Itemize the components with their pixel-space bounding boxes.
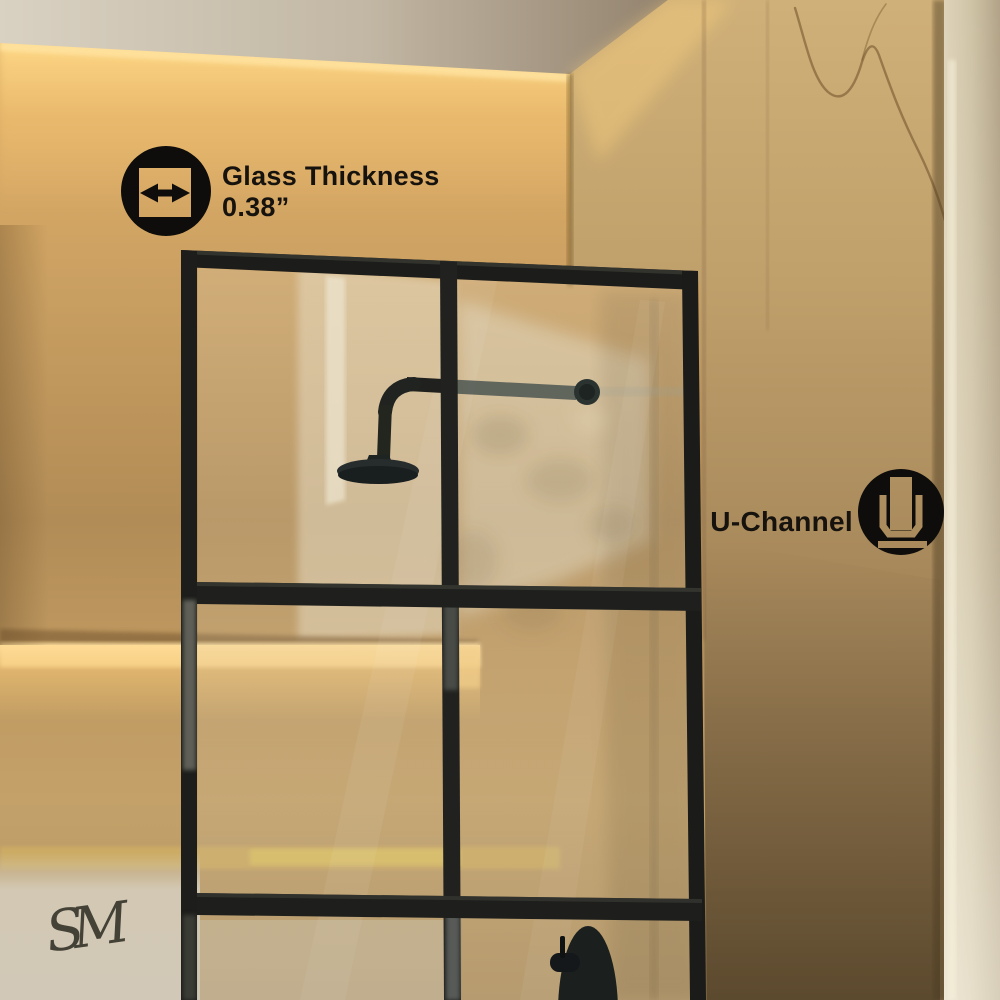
right-wall-seam-2	[766, 0, 769, 330]
glass-thickness-annotation: Glass Thickness 0.38”	[222, 161, 440, 223]
mixer-valve-pin	[560, 936, 565, 958]
frame-center-mullion-sheen-low	[446, 912, 460, 1000]
glass-thickness-annotation-icon	[121, 146, 211, 236]
right-wall-bottom-shadow	[705, 540, 940, 1000]
u-channel-profile-icon	[858, 469, 944, 555]
shower-arm-flange-center	[579, 384, 595, 400]
glass-thickness-value: 0.38”	[222, 192, 440, 223]
wall-corner-crease	[567, 74, 573, 286]
brand-monogram-signature: SM	[42, 891, 122, 965]
u-channel-annotation-icon	[858, 469, 944, 555]
product-image: Glass Thickness 0.38” U-Channel SM	[0, 0, 1000, 1000]
left-vignette	[0, 225, 48, 645]
shower-arm-reflection	[596, 387, 688, 396]
shower-pipe	[377, 405, 392, 458]
shower-head-face	[338, 466, 418, 484]
glass-thickness-label: Glass Thickness	[222, 161, 440, 192]
u-channel-annotation: U-Channel	[710, 508, 853, 536]
frame-left-bar-sheen	[183, 600, 196, 770]
bathroom-scene	[0, 0, 1000, 1000]
frame-center-mullion-sheen	[444, 600, 458, 690]
u-channel-label: U-Channel	[710, 506, 853, 537]
pillar-bright-edge	[948, 60, 956, 1000]
frame-left-bar-sheen-low	[183, 915, 196, 1000]
